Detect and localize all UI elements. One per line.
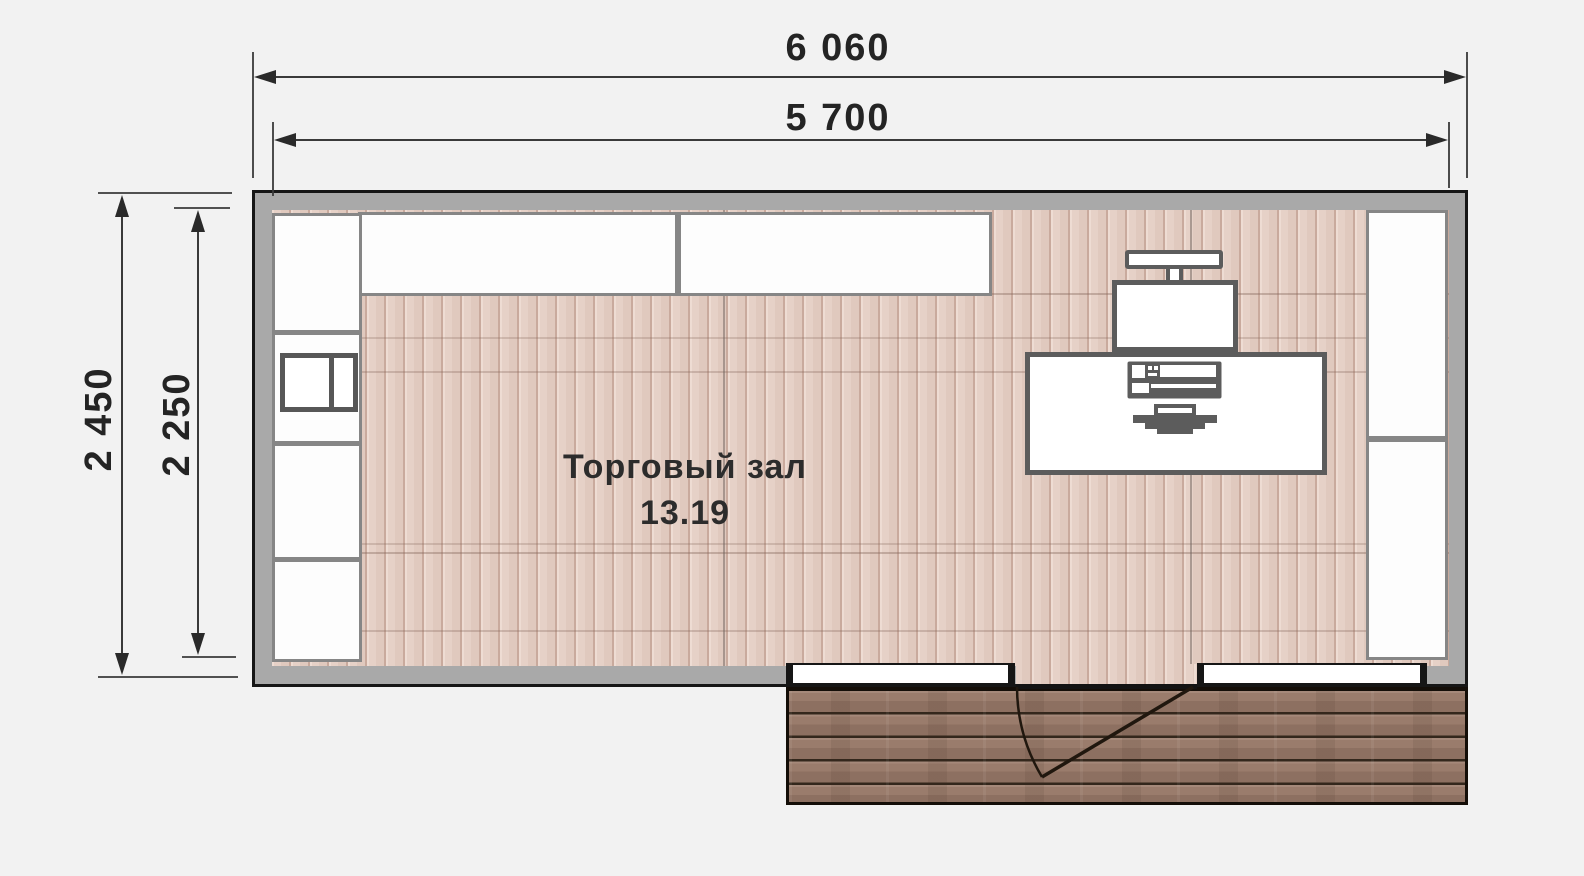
terminal-divider [329, 358, 334, 407]
counter-top-wall [358, 212, 992, 296]
shelf-left-wall [272, 213, 362, 662]
room-name: Торговый зал [440, 444, 930, 490]
floor-plan-canvas: 6 060 5 700 2 450 2 250 [0, 0, 1584, 876]
desk-device-icon [1133, 404, 1217, 434]
room-label: Торговый зал 13.19 [440, 444, 930, 536]
pos-keyboard-icon [1127, 361, 1222, 399]
shelf-divider [275, 557, 359, 562]
shelf-right-wall [1366, 210, 1448, 660]
shelf-divider [275, 330, 359, 335]
deck-porch [786, 687, 1468, 805]
counter-divider [675, 215, 681, 293]
dimension-top-inner-label: 5 700 [688, 96, 988, 140]
dimension-left-inner-label: 2 250 [155, 324, 199, 524]
door-opening-floor [1016, 664, 1197, 689]
dimension-left-outer-label: 2 450 [77, 319, 121, 519]
terminal-icon [280, 353, 358, 412]
shelf-divider [275, 441, 359, 446]
window-bottom-right [1197, 663, 1427, 685]
room-area: 13.19 [440, 490, 930, 536]
shelf-divider [1369, 436, 1445, 442]
window-bottom-left [786, 663, 1015, 685]
monitor-icon [1125, 250, 1223, 269]
terminal-box [1112, 280, 1238, 352]
dimension-top-outer-label: 6 060 [688, 26, 988, 70]
